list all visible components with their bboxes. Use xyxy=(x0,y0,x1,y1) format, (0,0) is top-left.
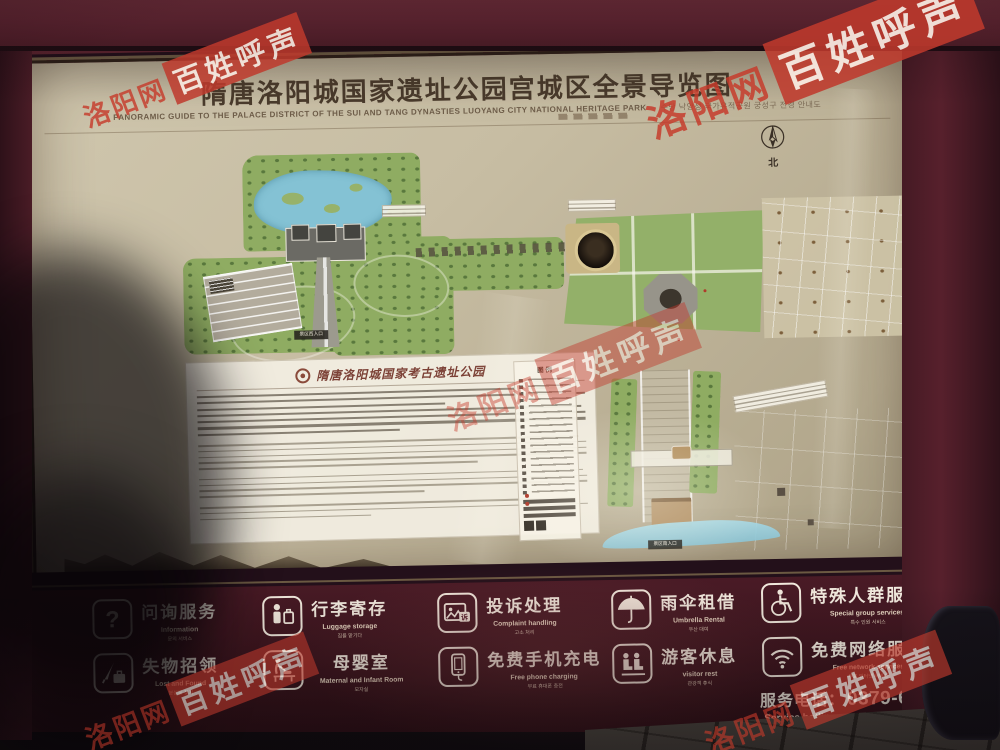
lake-island xyxy=(324,204,340,213)
palace-hall xyxy=(343,224,361,240)
glass-reflection xyxy=(504,406,777,576)
compass-icon xyxy=(759,124,786,154)
intro-title: 隋唐洛阳城国家考古遗址公园 xyxy=(316,362,485,384)
parking-lot xyxy=(203,263,302,342)
luggage-icon xyxy=(262,596,303,637)
map-caption-box xyxy=(382,204,426,217)
palace-hall xyxy=(316,224,336,242)
service-label-ko: 특수 인원 서비스 xyxy=(850,618,885,626)
parking-sign xyxy=(209,277,235,294)
compass: 北 xyxy=(754,124,791,170)
photo-of-park-guide-board: 隋唐洛阳城国家遗址公园宫城区全景导览图 PANORAMIC GUIDE TO T… xyxy=(0,0,1000,750)
west-entrance-label: 景区西入口 xyxy=(294,330,328,340)
service-label-en: Special group services xyxy=(830,608,904,617)
map-marker xyxy=(703,289,706,292)
palace-hall xyxy=(291,224,309,240)
lake-island xyxy=(282,193,304,205)
compass-label: 北 xyxy=(755,159,791,170)
map-caption-box xyxy=(568,199,616,212)
lake-island xyxy=(349,183,362,191)
park-logo-icon xyxy=(295,368,310,383)
palace-complex xyxy=(285,226,366,261)
panel-smudge xyxy=(558,113,630,120)
map-structure-dot xyxy=(777,488,785,496)
